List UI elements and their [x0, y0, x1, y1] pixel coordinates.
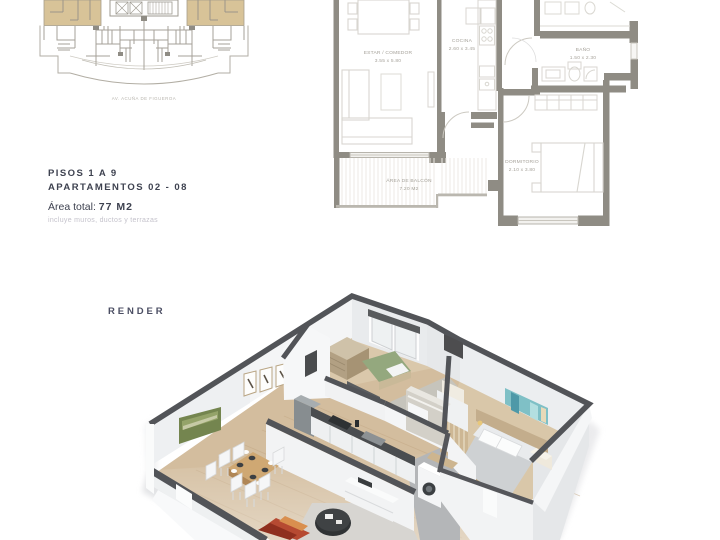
svg-text:3.55 x 5.80: 3.55 x 5.80 [375, 58, 401, 64]
svg-text:AV. ACUÑA DE FIGUEROA: AV. ACUÑA DE FIGUEROA [112, 96, 176, 101]
svg-text:7.20 M2: 7.20 M2 [399, 186, 418, 192]
svg-text:COCINA: COCINA [452, 38, 473, 44]
svg-text:2.10 x 3.80: 2.10 x 3.80 [509, 167, 535, 173]
svg-text:BAÑO: BAÑO [576, 46, 591, 53]
svg-text:2.60 x 3.45: 2.60 x 3.45 [449, 46, 475, 52]
svg-text:DORMITORIO: DORMITORIO [505, 159, 539, 165]
svg-text:ESTAR / COMEDOR: ESTAR / COMEDOR [364, 50, 413, 56]
svg-text:ÁREA DE BALCÓN: ÁREA DE BALCÓN [386, 177, 432, 184]
svg-text:1.50 x 2.30: 1.50 x 2.30 [570, 55, 596, 61]
